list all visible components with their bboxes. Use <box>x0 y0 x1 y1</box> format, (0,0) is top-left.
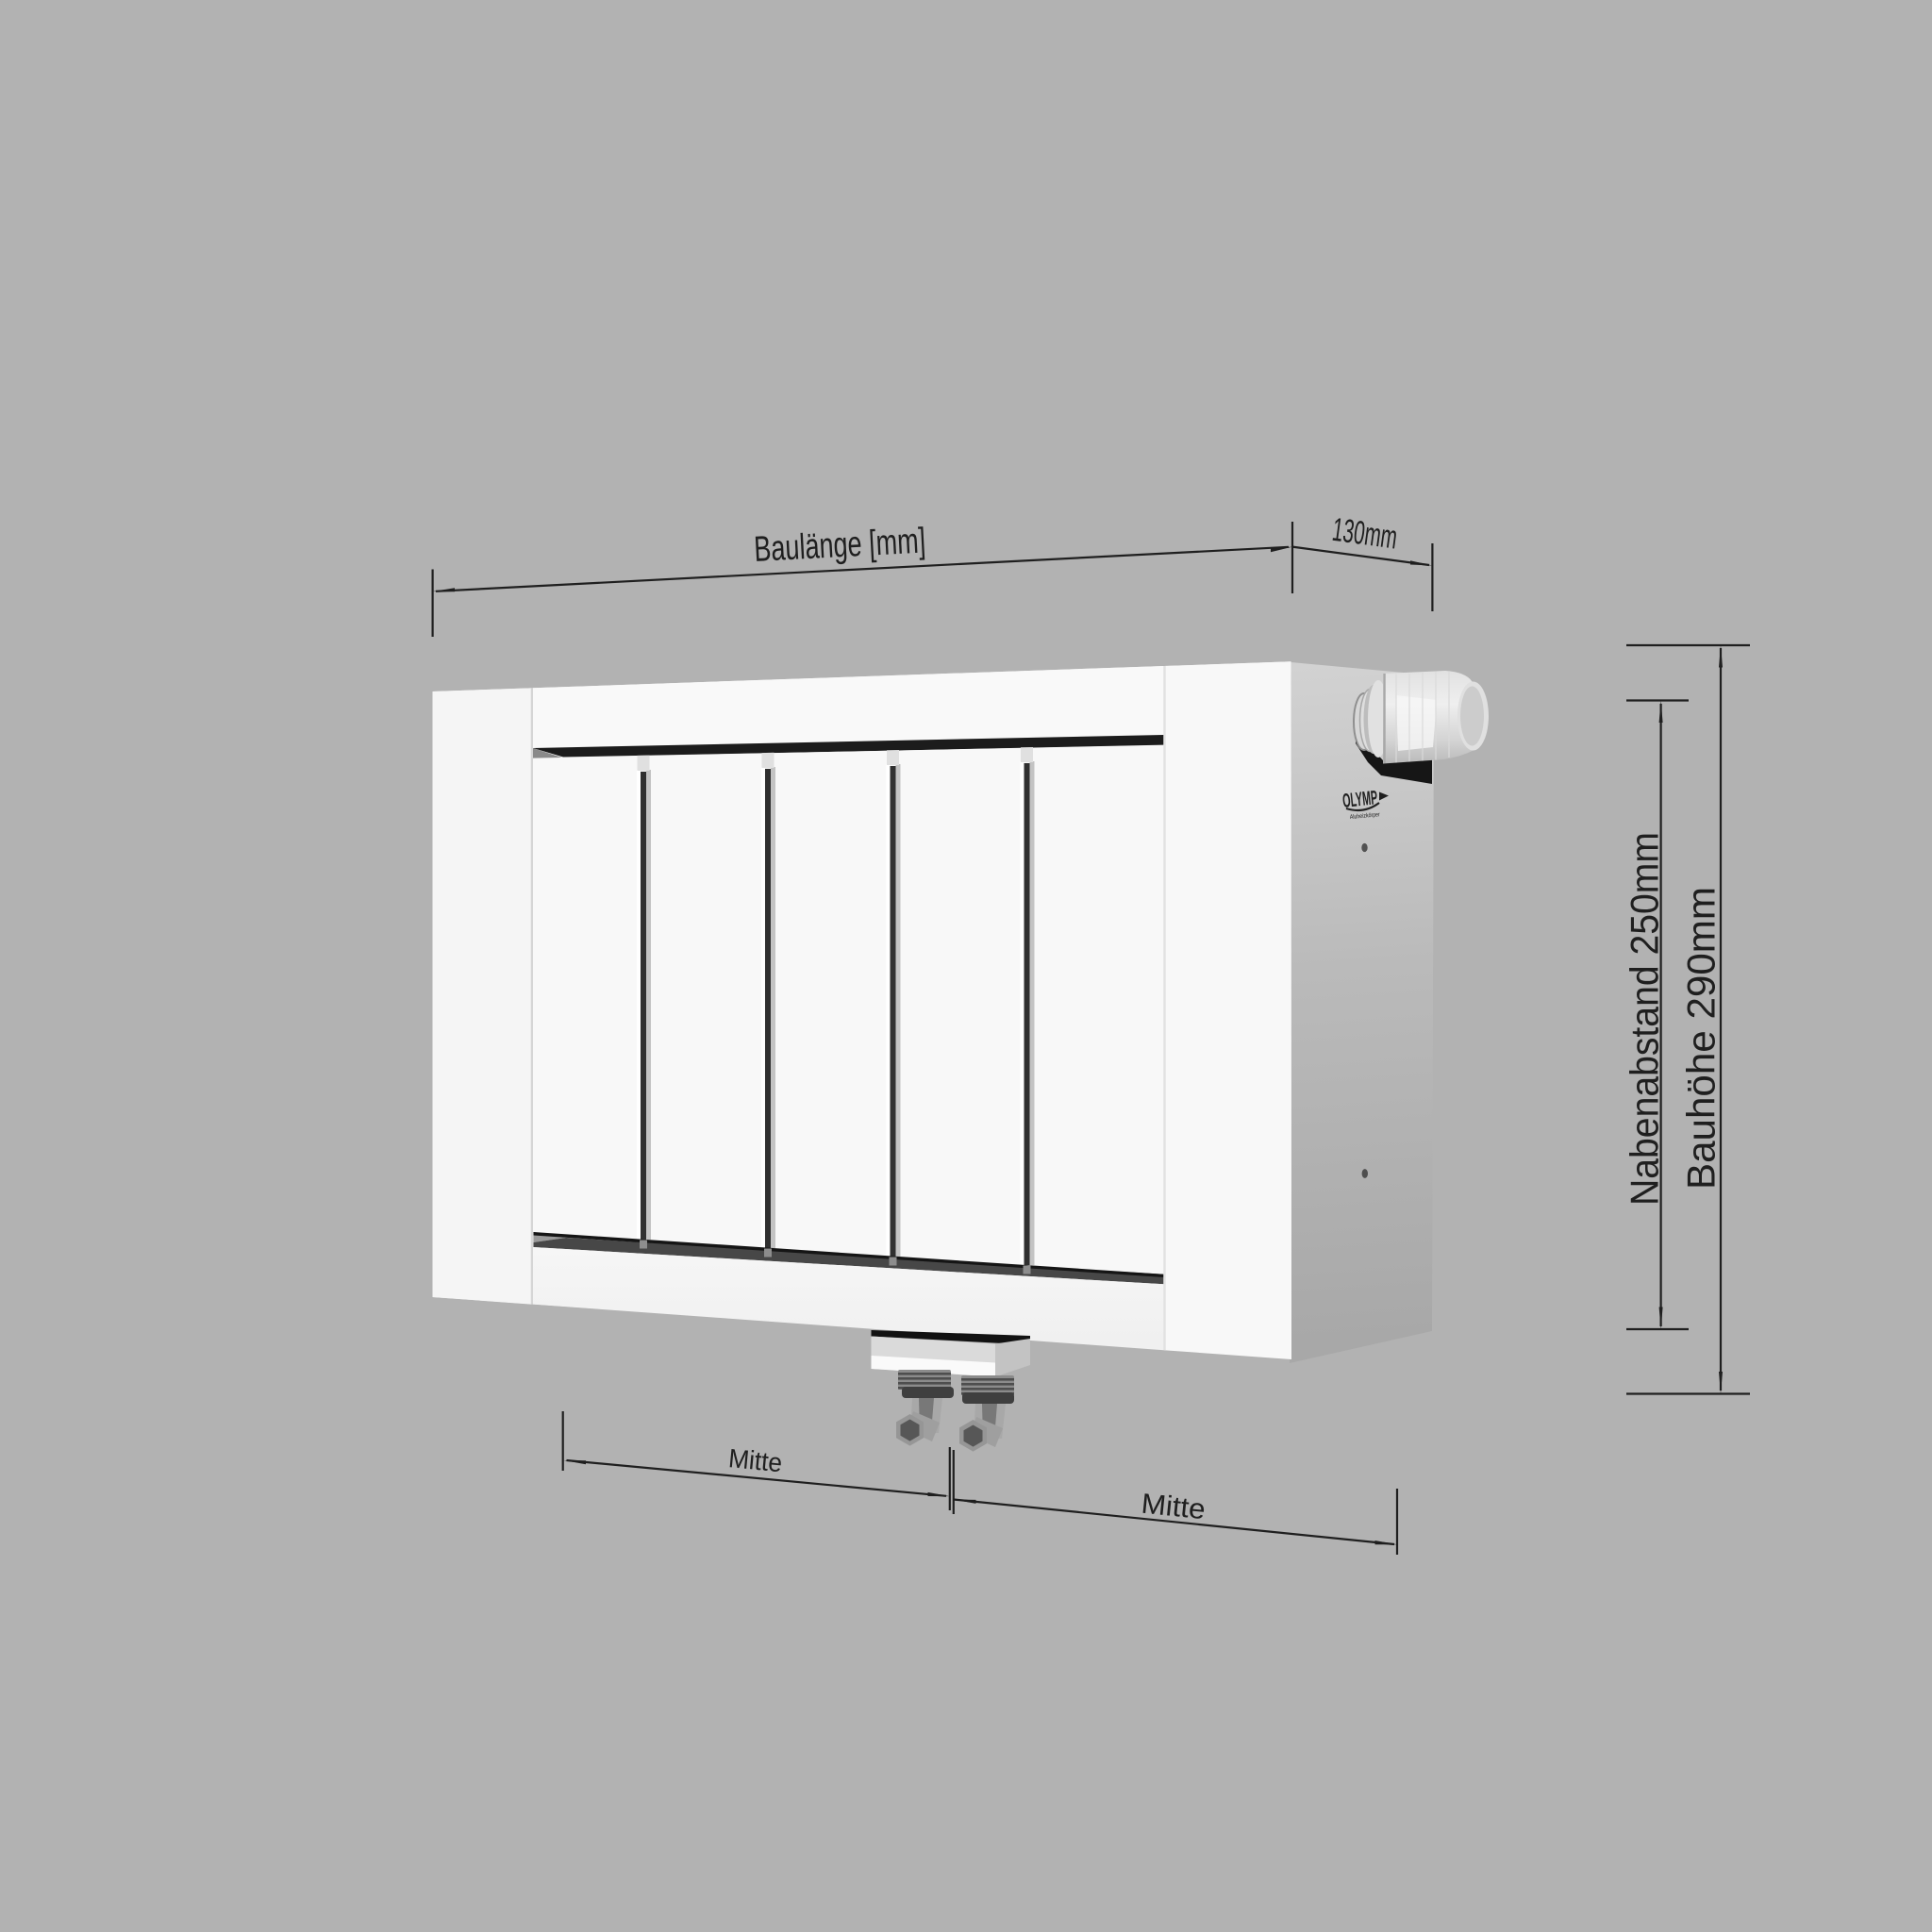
svg-text:Mitte: Mitte <box>1140 1489 1207 1526</box>
svg-text:Bauhöhe 290mm: Bauhöhe 290mm <box>1679 887 1724 1190</box>
svg-text:Nabenabstand 250mm: Nabenabstand 250mm <box>1623 832 1667 1206</box>
svg-text:Mitte: Mitte <box>727 1443 784 1477</box>
